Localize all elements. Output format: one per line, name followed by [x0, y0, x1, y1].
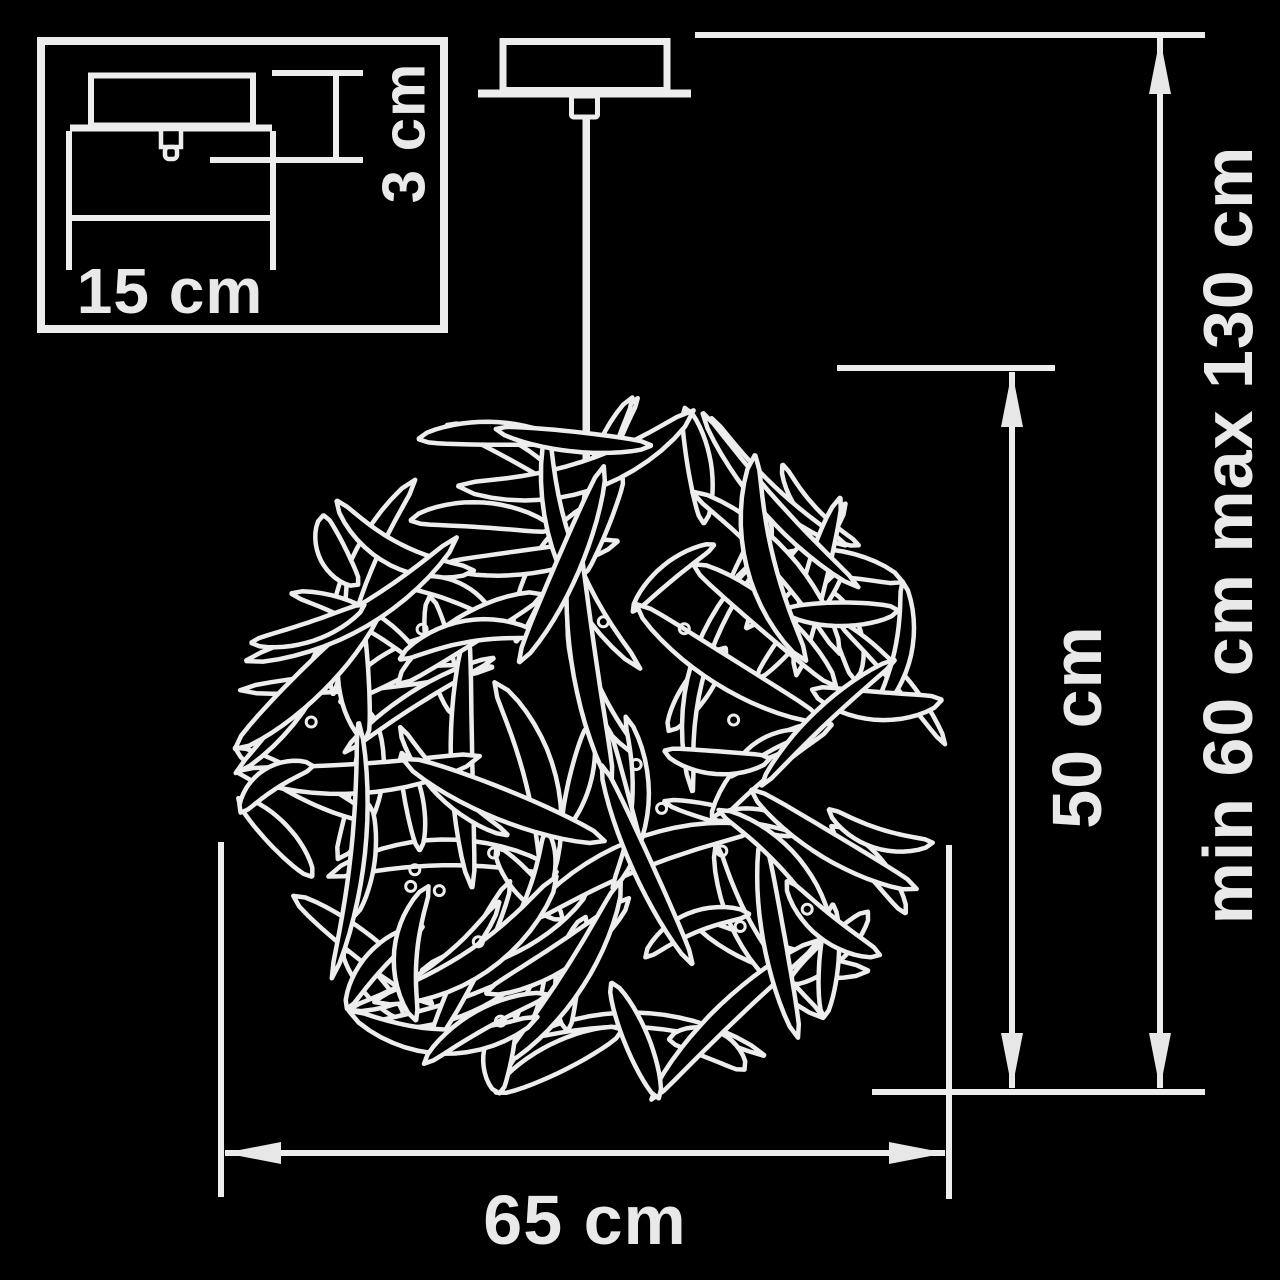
arrow-right	[889, 1142, 946, 1164]
shade-ribbon	[610, 983, 661, 1098]
screw-dot	[657, 803, 667, 813]
label-canopy-height: 3 cm	[370, 63, 439, 204]
label-suspension-range: min 60 cm max 130 cm	[1188, 146, 1268, 925]
shade-ribbon	[784, 603, 898, 627]
label-shade-height: 50 cm	[1037, 625, 1117, 828]
shade-ribbon	[411, 502, 553, 532]
lamp-dimension-diagram: 15 cm 3 cm 50 cm min 60 cm max 130 cm 65…	[0, 0, 1280, 1280]
screw-dot	[410, 865, 420, 875]
canopy-box	[503, 42, 667, 91]
label-shade-width: 65 cm	[483, 1180, 686, 1260]
inset-screw-body	[161, 129, 181, 147]
inset-canopy-box	[91, 76, 253, 126]
arrow-down	[1001, 1033, 1023, 1089]
arrow-down	[1149, 1033, 1171, 1089]
dimension-3cm	[210, 73, 363, 160]
shade-ribbon	[665, 749, 770, 775]
screw-dot	[406, 881, 416, 891]
canopy-screw	[572, 96, 598, 117]
arrow-left	[224, 1142, 281, 1164]
label-canopy-width: 15 cm	[77, 254, 263, 328]
screw-dot	[434, 886, 444, 896]
screw-dot	[306, 717, 316, 727]
inset-screw-tip	[165, 147, 177, 159]
arrow-up	[1001, 371, 1023, 427]
arrow-up	[1149, 38, 1171, 94]
shade-tangle	[235, 398, 945, 1100]
screw-dot	[417, 624, 427, 634]
screw-dot	[729, 715, 739, 725]
ceiling-canopy	[478, 42, 691, 118]
